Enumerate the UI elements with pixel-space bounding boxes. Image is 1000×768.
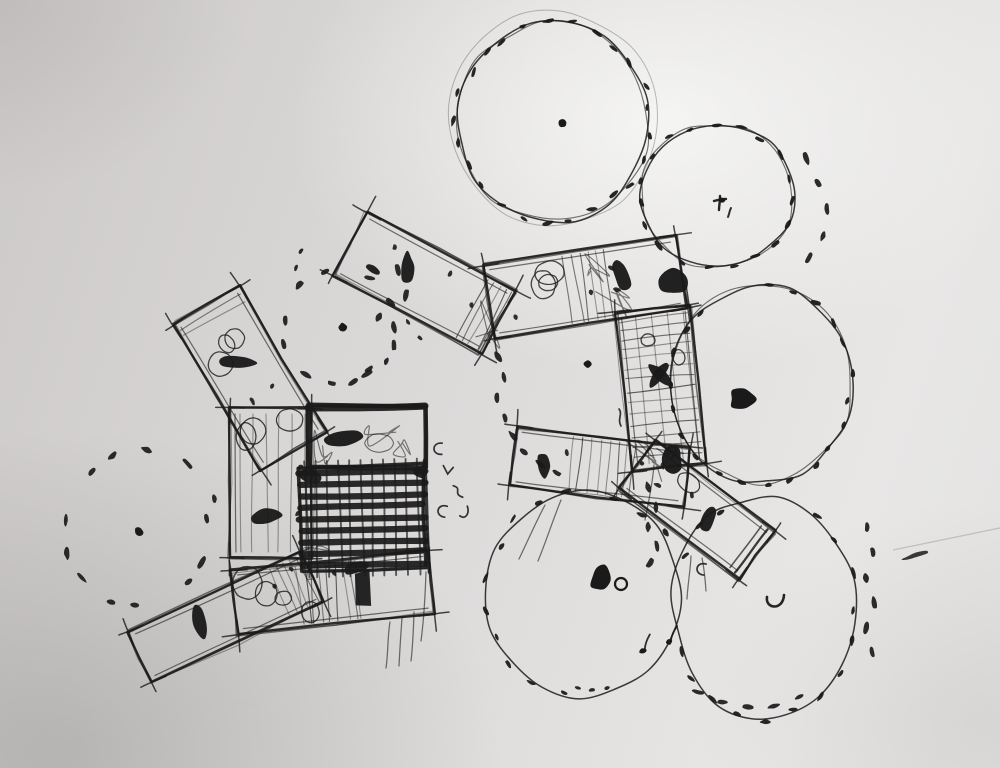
dotted-tree-left [63,445,217,609]
dot-trail [493,350,562,477]
ink-mark [619,409,621,426]
ink-mark [443,466,454,475]
tree-circle-bottom-center [482,488,682,699]
dotted-tree-center [280,268,398,387]
sketch-canvas [0,0,1000,768]
tree-circle-top-right [638,123,796,269]
ink-mark [433,443,444,456]
building-wing-north [313,189,538,374]
ink-mark [438,505,448,517]
ink-mark [460,506,468,518]
dot-trail [644,481,660,569]
ink-mark [665,626,677,646]
tree-circle-top-center [448,10,657,227]
dot-trail [802,151,830,264]
ink-mark [900,549,929,562]
stray-strokes [386,465,706,668]
junction-scribble [393,440,410,457]
building-wing-east-arm [596,285,723,491]
ink-mark [583,360,592,368]
junction-scribble [596,289,632,318]
dot-trail [862,522,878,657]
dot-trail [691,689,804,711]
photo-of-architectural-sketch [0,0,1000,768]
dot-trail [574,685,610,692]
building-wing-northwest [157,266,346,491]
central-hatched-block [297,458,432,577]
ink-mark [637,634,651,654]
ink-mark [453,486,463,497]
dot-trail [293,248,304,272]
ink-mark [641,334,655,346]
junction-scribble [364,426,399,446]
